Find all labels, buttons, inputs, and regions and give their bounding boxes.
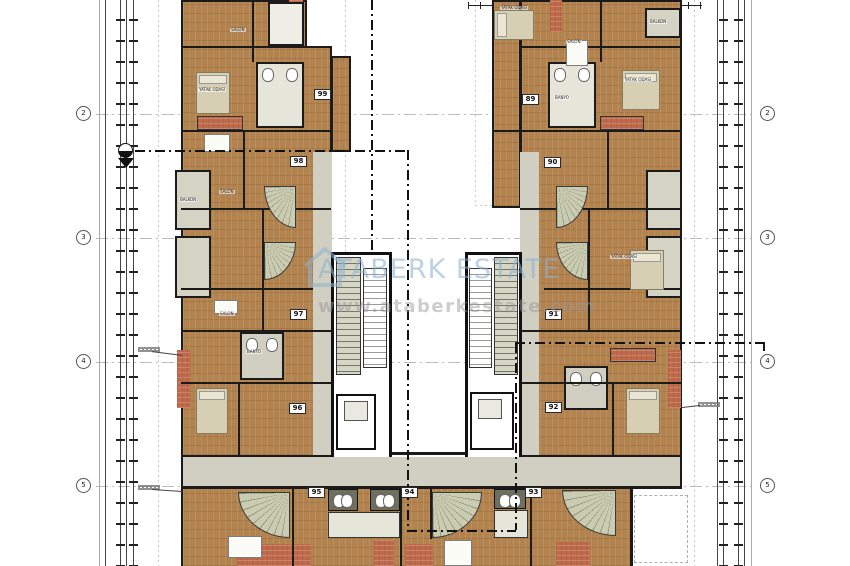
dimension-ticks xyxy=(734,0,743,566)
grid-bubble: 4 xyxy=(760,354,775,369)
room-label: BALKON xyxy=(179,198,197,202)
unit-number: 97 xyxy=(290,309,307,320)
grid-bubble: 5 xyxy=(76,478,91,493)
grid-bubble-label: 2 xyxy=(81,110,85,117)
tile-area xyxy=(374,540,394,566)
bathroom xyxy=(494,489,526,509)
tile-area xyxy=(668,350,681,408)
section-line xyxy=(515,342,764,344)
table xyxy=(444,540,472,566)
tile-area xyxy=(556,542,590,566)
room-label: YATAK ODASI xyxy=(624,78,652,82)
wall xyxy=(181,130,331,132)
section-line xyxy=(371,0,373,252)
unit-number: 99 xyxy=(314,89,331,100)
kitchen-counter xyxy=(600,116,644,130)
grid-bubble-label: 3 xyxy=(81,234,85,241)
unit-number: 95 xyxy=(308,487,325,498)
wall xyxy=(181,330,331,332)
unit-number-label: 93 xyxy=(529,489,539,496)
grid-line xyxy=(475,0,476,205)
grid-line xyxy=(694,0,695,566)
tile-area xyxy=(177,350,190,408)
wall xyxy=(600,0,602,62)
dimension-line xyxy=(751,0,752,566)
dimension-ticks xyxy=(116,0,125,566)
room-label: SALON xyxy=(219,312,235,316)
grid-bubble: 4 xyxy=(76,354,91,369)
room-label: YATAK ODASI xyxy=(500,6,528,10)
unit-number-label: 99 xyxy=(318,91,328,98)
unit-number: 93 xyxy=(525,487,542,498)
unit-number: 94 xyxy=(401,487,418,498)
bathroom xyxy=(256,62,304,128)
unit-number: 98 xyxy=(290,156,307,167)
grid-bubble: 2 xyxy=(76,106,91,121)
balcony xyxy=(646,170,682,230)
grid-bubble-label: 4 xyxy=(765,358,769,365)
dimension-ticks xyxy=(468,2,494,9)
wall xyxy=(181,46,306,48)
wall xyxy=(492,130,682,132)
dimension-line xyxy=(744,0,745,566)
unit-number: 96 xyxy=(289,403,306,414)
kitchen-counter xyxy=(610,348,656,362)
grid-bubble: 5 xyxy=(760,478,775,493)
elevator xyxy=(470,392,514,450)
watermark-brand: ATABERK ESTATE xyxy=(318,254,560,285)
wall xyxy=(181,382,331,384)
wall xyxy=(400,487,402,566)
bed xyxy=(494,10,534,40)
wall xyxy=(181,288,313,290)
corridor xyxy=(181,457,682,487)
section-marker-icon xyxy=(118,158,134,168)
wall xyxy=(243,130,245,208)
bathroom xyxy=(564,366,608,410)
table xyxy=(228,536,262,558)
wall xyxy=(630,487,633,566)
bathroom xyxy=(328,512,400,538)
elevator xyxy=(336,394,376,450)
unit-number: 89 xyxy=(522,94,539,105)
unit-number: 92 xyxy=(545,402,562,413)
watermark-website: www.ataberkestate.com xyxy=(318,296,597,317)
unit-number-label: 97 xyxy=(294,311,304,318)
wall xyxy=(252,0,254,62)
unit-number: 90 xyxy=(544,157,561,168)
unit-number-label: 90 xyxy=(548,159,558,166)
annotation-text xyxy=(698,402,720,407)
wall xyxy=(530,487,532,566)
section-line xyxy=(407,150,409,530)
wall xyxy=(520,330,682,332)
room-label: SALON xyxy=(230,28,246,32)
room-label: BANYO xyxy=(246,350,262,354)
bathroom xyxy=(370,489,400,511)
grid-bubble: 3 xyxy=(760,230,775,245)
room-label: SALON xyxy=(566,40,582,44)
bed xyxy=(626,388,660,434)
grid-bubble: 2 xyxy=(760,106,775,121)
unit-number-label: 95 xyxy=(312,489,322,496)
grid-bubble-label: 5 xyxy=(765,482,769,489)
bathroom xyxy=(240,332,284,380)
section-line xyxy=(515,343,517,530)
wall xyxy=(520,382,682,384)
section-line xyxy=(407,530,516,532)
room-label: YATAK ODASI xyxy=(198,88,226,92)
unit-number-label: 94 xyxy=(405,489,415,496)
bed xyxy=(622,70,660,110)
bathroom xyxy=(268,2,304,46)
grid-bubble-label: 4 xyxy=(81,358,85,365)
section-line xyxy=(135,150,408,152)
annotation-box xyxy=(634,495,688,563)
unit-number-label: 96 xyxy=(293,405,303,412)
wall-notch xyxy=(305,0,332,48)
bathroom xyxy=(328,489,358,511)
tile-area xyxy=(405,544,433,566)
room-label: BALKON xyxy=(649,20,667,24)
dimension-ticks xyxy=(129,0,138,566)
grid-bubble: 3 xyxy=(76,230,91,245)
unit-number-label: 98 xyxy=(294,158,304,165)
room-label: BANYO xyxy=(554,96,570,100)
room-label: YATAK ODASI xyxy=(610,255,638,259)
dimension-line xyxy=(105,0,106,566)
grid-bubble-label: 3 xyxy=(765,234,769,241)
tile-area xyxy=(550,0,562,32)
grid-bubble-label: 2 xyxy=(765,110,769,117)
section-marker-icon xyxy=(118,143,133,158)
wall xyxy=(607,130,609,208)
wall xyxy=(392,452,466,455)
dimension-line xyxy=(99,0,100,566)
unit-number-label: 89 xyxy=(526,96,536,103)
bathroom xyxy=(494,510,528,538)
wall xyxy=(520,208,682,210)
bed xyxy=(196,72,230,114)
room-label: SALON xyxy=(219,190,235,194)
dimension-line xyxy=(717,0,718,566)
wall xyxy=(181,208,331,210)
dimension-ticks xyxy=(719,0,728,566)
grid-bubble-label: 5 xyxy=(81,482,85,489)
leader-line xyxy=(152,489,182,492)
bed xyxy=(196,388,228,434)
wall xyxy=(292,487,294,566)
kitchen-counter xyxy=(197,116,243,130)
wall xyxy=(238,382,240,455)
wall xyxy=(612,382,614,455)
unit-number-label: 92 xyxy=(549,404,559,411)
floor-plan-drawing: 2 3 4 5 2 3 4 5 99 98 97 96 95 94 93 92 … xyxy=(0,0,850,566)
grid-line xyxy=(158,0,159,566)
left-wing-extension xyxy=(331,56,351,152)
dimension-line xyxy=(126,0,127,566)
